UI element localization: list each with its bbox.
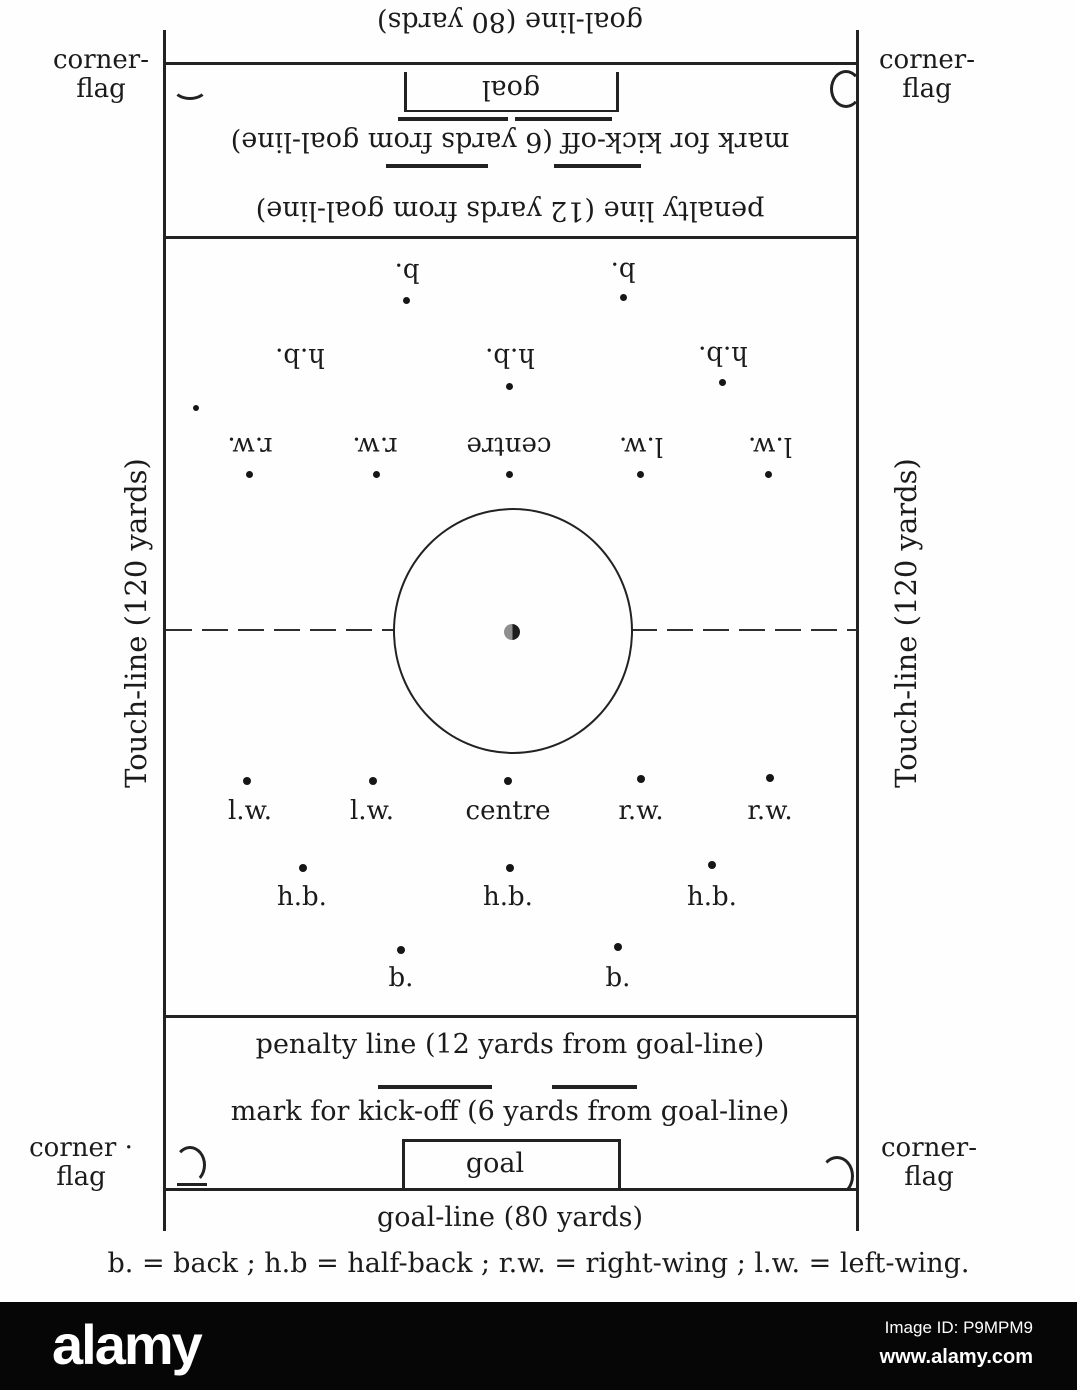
player-label-halfback: h.b. [672, 882, 752, 912]
player-dot [637, 775, 645, 783]
goal-line-top [163, 62, 859, 65]
player-label-forward: r.w. [330, 431, 420, 461]
player-dot [719, 379, 726, 386]
player-dot [243, 777, 251, 785]
kickoff-mark-top-2 [554, 164, 641, 168]
player-label-forward: l.w. [725, 431, 815, 461]
player-label-forward: l.w. [327, 796, 417, 826]
touchline-label-left: Touch-line (120 yards) [119, 448, 153, 798]
alamy-url-text: www.alamy.com [880, 1346, 1033, 1369]
player-label-forward: r.w. [205, 431, 295, 461]
player-dot [614, 943, 622, 951]
touchline-label-right: Touch-line (120 yards) [889, 448, 923, 798]
player-label-halfback: h.b. [468, 882, 548, 912]
player-label-back: b. [377, 257, 437, 287]
halfway-line-right [631, 629, 857, 631]
watermark-bar: alamy Image ID: P9MPM9 www.alamy.com [0, 1302, 1077, 1390]
player-dot [620, 294, 627, 301]
penalty-line-bottom [164, 1015, 857, 1018]
player-dot [637, 471, 644, 478]
corner-flag-label-top-right: corner- flag [868, 46, 986, 104]
goal-box-top-dash1 [398, 117, 508, 121]
scanned-book-page: goal goal-line (80 yards) mark for kick-… [0, 0, 1077, 1390]
goal-line-label-top: goal-line (80 yards) [310, 6, 710, 37]
player-label-forward: r.w. [725, 796, 815, 826]
player-dot [299, 864, 307, 872]
corner-flag-line1: corner- [870, 1134, 988, 1163]
corner-arc-top-left [172, 74, 208, 100]
kickoff-label-top: mark for kick-off (6 yards from goal-lin… [230, 126, 790, 157]
goal-label-top: goal [404, 74, 618, 105]
player-dot [403, 297, 410, 304]
player-label-forward: l.w. [205, 796, 295, 826]
kickoff-label-bottom: mark for kick-off (6 yards from goal-lin… [230, 1096, 790, 1127]
corner-flag-line1: corner- [42, 46, 160, 75]
kickoff-mark-bottom-2 [552, 1085, 637, 1089]
corner-flag-line2: flag [42, 75, 160, 104]
player-label-back: b. [588, 963, 648, 993]
kickoff-mark-bottom-1 [378, 1085, 492, 1089]
player-label-forward: centre [464, 431, 554, 461]
player-dot [765, 471, 772, 478]
corner-flag-line1: corner · [24, 1134, 138, 1163]
player-dot [369, 777, 377, 785]
corner-flag-line2: flag [870, 1163, 988, 1192]
image-id-text: Image ID: P9MPM9 [880, 1318, 1033, 1338]
centre-spot [504, 624, 520, 640]
penalty-line-top [164, 236, 857, 239]
halfway-line-left [166, 629, 393, 631]
player-label-back: b. [371, 963, 431, 993]
player-label-forward: l.w. [596, 431, 686, 461]
player-dot [193, 405, 199, 411]
player-label-halfback: h.b. [470, 342, 550, 372]
player-label-forward: centre [463, 796, 553, 826]
player-label-halfback: h.b. [260, 342, 340, 372]
penalty-label-bottom: penalty line (12 yards from goal-line) [240, 1029, 780, 1060]
player-label-forward: r.w. [596, 796, 686, 826]
corner-flag-label-top-left: corner- flag [42, 46, 160, 104]
alamy-logo: alamy [52, 1312, 201, 1377]
corner-flag-label-bottom-right: corner- flag [870, 1134, 988, 1192]
player-label-halfback: h.b. [262, 882, 342, 912]
player-dot [708, 861, 716, 869]
goal-box-top-dash2 [515, 117, 612, 121]
player-label-halfback: h.b. [683, 340, 763, 370]
player-dot [506, 864, 514, 872]
corner-flag-line2: flag [24, 1163, 138, 1192]
goal-line-label-bottom: goal-line (80 yards) [310, 1202, 710, 1233]
legend-text: b. = back ; h.b = half-back ; r.w. = rig… [0, 1248, 1077, 1279]
corner-arc-bottom-left [174, 1146, 206, 1184]
goal-line-bottom [163, 1188, 859, 1191]
goal-box-bottom-top [402, 1139, 620, 1142]
corner-arc-bottom-right [820, 1156, 854, 1196]
corner-flag-line2: flag [868, 75, 986, 104]
corner-flag-label-bottom-left: corner · flag [24, 1134, 138, 1192]
watermark-info: Image ID: P9MPM9 www.alamy.com [880, 1318, 1033, 1369]
corner-arc-top-right [830, 70, 862, 108]
player-dot [373, 471, 380, 478]
goal-box-top-bottom [404, 110, 618, 112]
player-dot [506, 383, 513, 390]
corner-arc-bottom-left-base [177, 1183, 207, 1186]
kickoff-mark-top-1 [386, 164, 488, 168]
player-dot [506, 471, 513, 478]
goal-label-bottom: goal [395, 1148, 595, 1179]
player-dot [246, 471, 253, 478]
corner-flag-line1: corner- [868, 46, 986, 75]
player-dot [766, 774, 774, 782]
player-label-back: b. [593, 256, 653, 286]
player-dot [397, 946, 405, 954]
goal-post-bottom-right [618, 1139, 621, 1189]
player-dot [504, 777, 512, 785]
penalty-label-top: penalty line (12 yards from goal-line) [240, 195, 780, 226]
